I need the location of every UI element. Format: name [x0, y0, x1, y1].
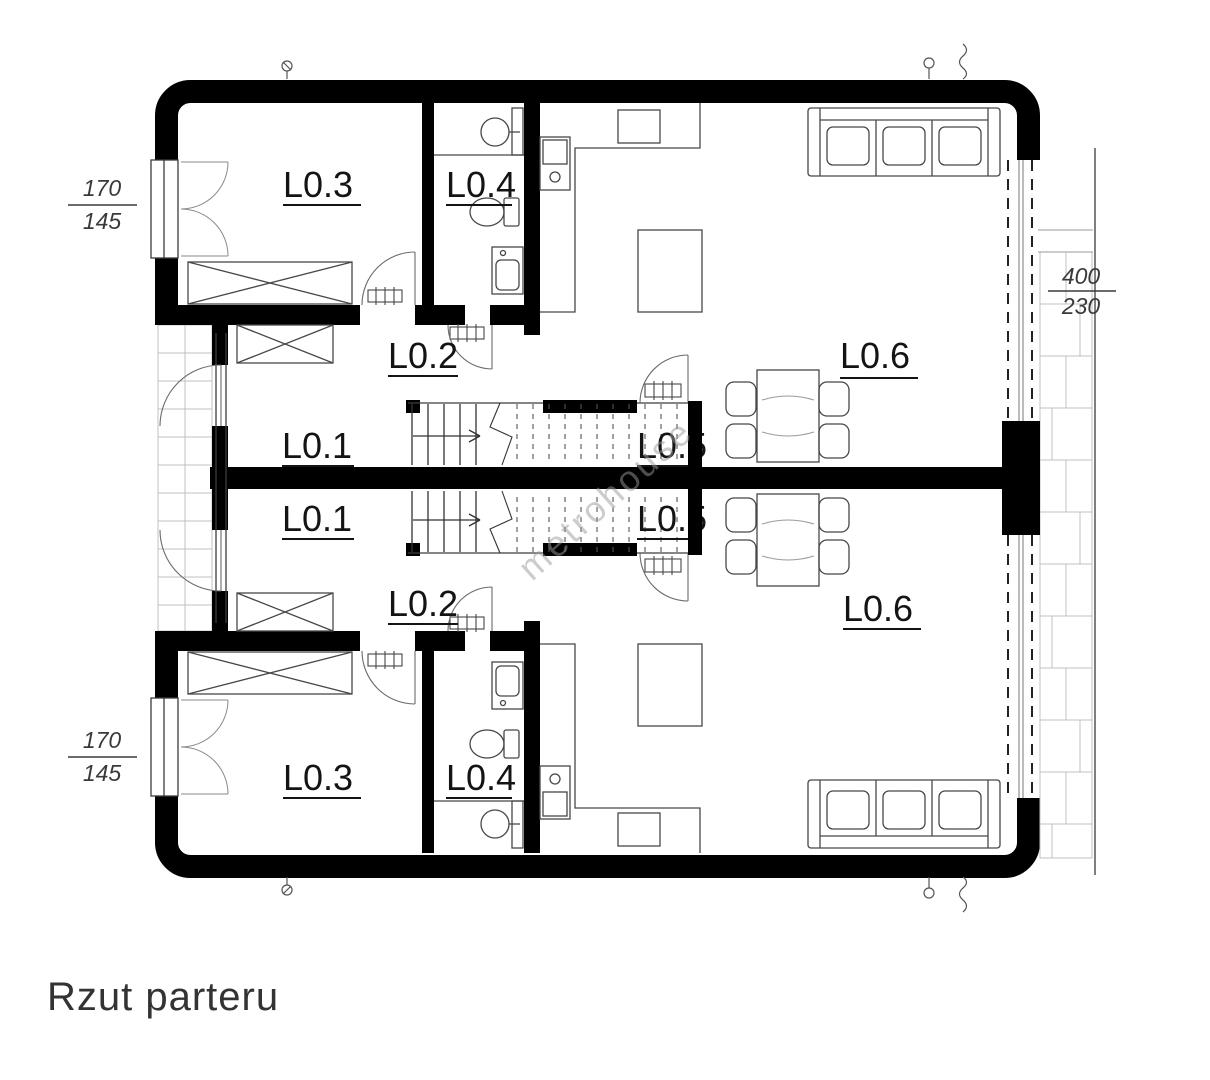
floor-plan-page: 170 145 170 145 400 230 L0.3 L0.4 L0.2 L… [0, 0, 1210, 1080]
dimension-left-bottom: 170 145 [68, 727, 137, 786]
sink-icon [481, 118, 509, 146]
room-label-l02-lower: L0.2 [388, 583, 458, 624]
wardrobe-hall [237, 325, 333, 363]
window-casement-arcs [181, 162, 228, 256]
washing-machine-icon [492, 247, 523, 294]
dim-width: 170 [83, 727, 122, 753]
dim-width: 400 [1062, 263, 1101, 289]
downpipe-squiggle-icon [960, 44, 967, 79]
unit-upper [155, 44, 1000, 478]
kitchen-sink-icon [540, 137, 570, 190]
room-label-l04-upper: L0.4 [446, 164, 516, 205]
drain-point-icon [924, 58, 934, 68]
room-label-l02-upper: L0.2 [388, 335, 458, 376]
dim-height: 145 [83, 208, 122, 234]
room-label-l01-lower: L0.1 [282, 498, 352, 539]
bedroom-door [362, 252, 415, 305]
stair-direction-arrow [413, 430, 480, 442]
room-label-l06-lower: L0.6 [843, 588, 913, 629]
dim-width: 170 [83, 175, 122, 201]
room-labels-upper: L0.3 L0.4 L0.2 L0.1 L0.5 L0.6 [282, 164, 918, 466]
dimension-left-top: 170 145 [68, 175, 137, 234]
room-label-l03-upper: L0.3 [283, 164, 353, 205]
room-label-l03-lower: L0.3 [283, 757, 353, 798]
utility-symbols [282, 44, 967, 79]
room-label-l04-lower: L0.4 [446, 757, 516, 798]
dining-set [726, 370, 849, 462]
terrace-paving [1038, 148, 1095, 875]
island-table [638, 230, 702, 312]
dimension-right: 400 230 [1048, 263, 1116, 319]
dim-height: 230 [1061, 293, 1101, 319]
sofa [808, 108, 1000, 176]
room-label-l01-upper: L0.1 [282, 425, 352, 466]
floor-plan-drawing: 170 145 170 145 400 230 L0.3 L0.4 L0.2 L… [0, 0, 1210, 1080]
room-label-l06-upper: L0.6 [840, 335, 910, 376]
page-title: Rzut parteru [47, 975, 279, 1019]
wardrobe-bedroom [188, 262, 352, 304]
kitchen [540, 103, 702, 312]
dim-height: 145 [83, 760, 122, 786]
cooktop-icon [618, 110, 660, 143]
